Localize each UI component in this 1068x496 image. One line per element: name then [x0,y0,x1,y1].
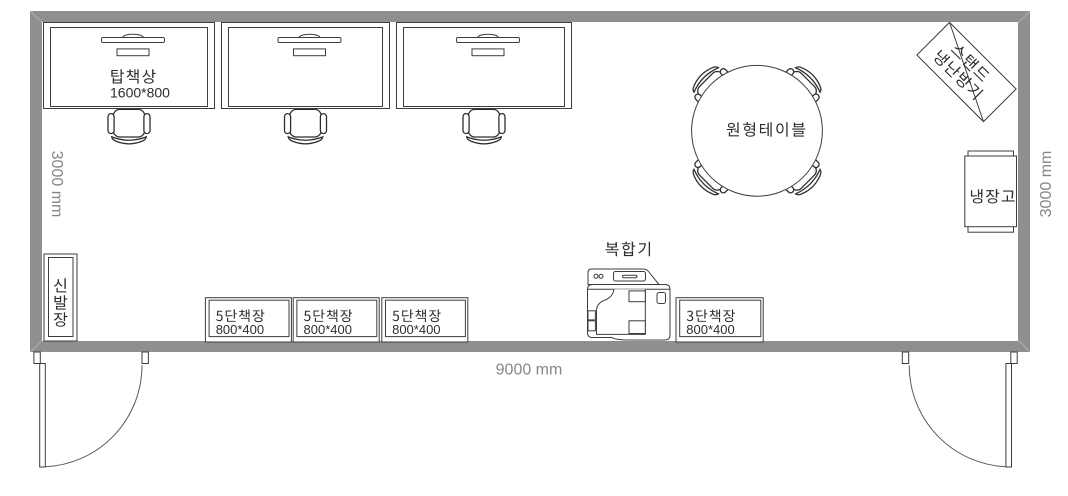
svg-text:3000 mm: 3000 mm [1038,151,1055,218]
svg-text:3000 mm: 3000 mm [48,151,65,218]
svg-text:1600*800: 1600*800 [110,84,170,100]
svg-text:800*400: 800*400 [686,322,734,337]
svg-text:800*400: 800*400 [392,322,440,337]
svg-text:800*400: 800*400 [216,322,264,337]
svg-text:9000 mm: 9000 mm [496,362,563,379]
svg-text:800*400: 800*400 [304,322,352,337]
